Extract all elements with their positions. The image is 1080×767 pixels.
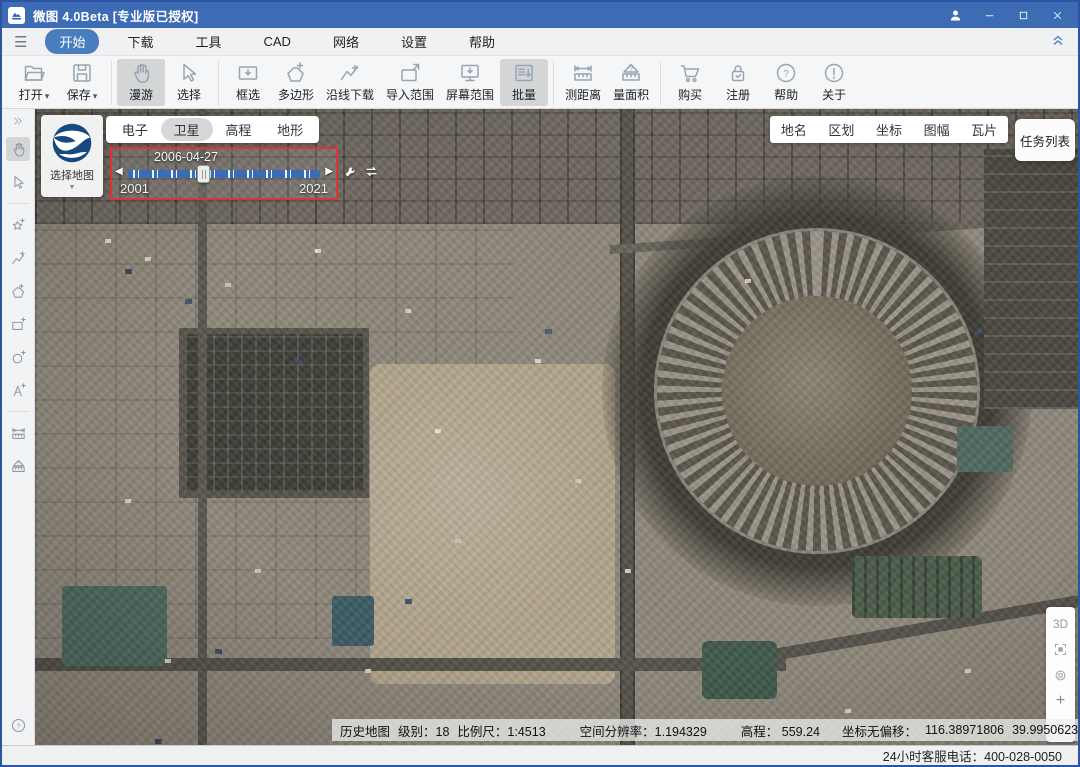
hand-pan-icon — [129, 61, 153, 85]
draw-polyline-button[interactable] — [6, 246, 30, 270]
status-resolution: 空间分辨率：1.194329 — [580, 721, 707, 740]
zoom-in-button[interactable]: + — [1056, 694, 1065, 708]
window-title: 微图 4.0Beta [专业版已授权] — [33, 6, 198, 25]
measure-distance-button[interactable]: 测距离 — [559, 59, 607, 106]
maximize-button[interactable] — [1008, 3, 1038, 27]
layer-tab-elevation[interactable]: 高程 — [213, 118, 265, 141]
minimize-button[interactable] — [974, 3, 1004, 27]
sidebar-help-icon[interactable] — [6, 713, 30, 737]
about-button[interactable]: 关于 — [810, 59, 858, 106]
monitor-download-icon — [458, 61, 482, 85]
ruler-icon — [571, 61, 595, 85]
import-range-button[interactable]: 导入范围 — [380, 59, 440, 106]
save-button[interactable]: 保存▾ — [58, 59, 106, 106]
user-account-icon[interactable] — [940, 3, 970, 27]
save-icon — [70, 61, 94, 85]
layer-tab-terrain[interactable]: 地形 — [264, 118, 316, 141]
draw-rectangle-button[interactable] — [6, 312, 30, 336]
status-longitude: 116.38971806 — [925, 723, 1004, 737]
earth-logo-icon — [50, 121, 94, 165]
timeline-slider-thumb[interactable] — [197, 165, 210, 183]
app-window: 微图 4.0Beta [专业版已授权] ☰ 开始 下载 工具 CAD 网络 设置… — [0, 0, 1080, 767]
layer-tab-electronic[interactable]: 电子 — [109, 118, 161, 141]
title-bar: 微图 4.0Beta [专业版已授权] — [2, 2, 1078, 28]
layer-tab-bar: 电子 卫星 高程 地形 — [106, 116, 319, 143]
toolbar-separator — [218, 61, 219, 105]
mode-3d-button[interactable]: 3D — [1053, 617, 1068, 631]
sidebar-measure-area-button[interactable] — [6, 454, 30, 478]
polygon-plus-icon — [284, 61, 308, 85]
fullscreen-icon[interactable] — [1053, 642, 1068, 657]
timeline-end-year: 2021 — [299, 181, 328, 196]
status-scale: 比例尺：1:4513 — [457, 721, 545, 740]
toolbar-separator — [111, 61, 112, 105]
wrench-icon[interactable] — [343, 164, 358, 179]
footer-bar: 24小时客服电话：400-028-0050 — [2, 745, 1078, 765]
ribbon-toolbar: 打开▾ 保存▾ 漫游 选择 框选 多边形 沿线下载 导入范 — [2, 56, 1078, 109]
status-latitude: 39.9950623 — [1012, 723, 1078, 737]
menu-tools[interactable]: 工具 — [181, 29, 235, 54]
service-phone: 24小时客服电话：400-028-0050 — [883, 746, 1062, 765]
import-box-icon — [398, 61, 422, 85]
tab-districts[interactable]: 区划 — [818, 120, 866, 139]
status-history-map: 历史地图 — [340, 721, 390, 740]
swap-arrows-icon[interactable] — [364, 164, 379, 179]
draw-circle-button[interactable] — [6, 345, 30, 369]
satellite-vignette — [35, 109, 1078, 745]
map-viewport[interactable]: 选择地图 ▼ 电子 卫星 高程 地形 2006-04-27 ◀ ▶ 2001 2… — [35, 109, 1078, 745]
lock-check-icon — [726, 61, 750, 85]
caret-down-icon: ▼ — [69, 185, 76, 191]
locate-icon[interactable] — [1053, 668, 1068, 683]
expand-panel-icon[interactable] — [9, 114, 27, 128]
tab-place-names[interactable]: 地名 — [770, 120, 818, 139]
batch-button[interactable]: 批量 — [500, 59, 548, 106]
tab-tiles[interactable]: 瓦片 — [960, 120, 1008, 139]
collapse-ribbon-icon[interactable] — [1050, 31, 1066, 52]
menu-settings[interactable]: 设置 — [387, 29, 441, 54]
select-button[interactable]: 选择 — [165, 59, 213, 106]
question-circle-icon — [774, 61, 798, 85]
menu-cad[interactable]: CAD — [250, 31, 305, 52]
app-logo-icon — [8, 7, 25, 24]
menu-start[interactable]: 开始 — [45, 29, 99, 54]
close-button[interactable] — [1042, 3, 1072, 27]
dropdown-arrow-icon: ▾ — [45, 91, 50, 101]
status-zoom-level: 级别：18 — [398, 721, 449, 740]
sidebar-separator — [7, 411, 29, 412]
toolbar-separator — [660, 61, 661, 105]
tab-map-sheets[interactable]: 图幅 — [913, 120, 961, 139]
skip-forward-icon[interactable]: ▶ — [325, 166, 333, 177]
buy-button[interactable]: 购买 — [666, 59, 714, 106]
menu-download[interactable]: 下载 — [113, 29, 167, 54]
map-picker-label: 选择地图 — [50, 167, 94, 183]
left-tool-sidebar — [2, 109, 35, 745]
dropdown-arrow-icon: ▾ — [93, 91, 98, 101]
history-timeline-panel: 2006-04-27 ◀ ▶ 2001 2021 — [110, 147, 338, 200]
tab-coordinates[interactable]: 坐标 — [865, 120, 913, 139]
hamburger-menu-icon[interactable]: ☰ — [14, 33, 27, 51]
along-line-download-button[interactable]: 沿线下载 — [320, 59, 380, 106]
menu-bar: ☰ 开始 下载 工具 CAD 网络 设置 帮助 — [2, 28, 1078, 56]
open-button[interactable]: 打开▾ — [10, 59, 58, 106]
timeline-slider-track[interactable] — [128, 170, 320, 178]
exclamation-circle-icon — [822, 61, 846, 85]
sidebar-roam-button[interactable] — [6, 137, 30, 161]
menu-network[interactable]: 网络 — [319, 29, 373, 54]
layer-tab-satellite[interactable]: 卫星 — [161, 118, 213, 141]
sidebar-measure-distance-button[interactable] — [6, 421, 30, 445]
map-source-picker[interactable]: 选择地图 ▼ — [41, 115, 103, 197]
polygon-button[interactable]: 多边形 — [272, 59, 320, 106]
status-offset-label: 坐标无偏移： — [842, 721, 917, 740]
measure-area-button[interactable]: 量面积 — [607, 59, 655, 106]
draw-polygon-button[interactable] — [6, 279, 30, 303]
toolbar-separator — [553, 61, 554, 105]
box-download-icon — [236, 61, 260, 85]
sidebar-select-button[interactable] — [6, 170, 30, 194]
timeline-start-year: 2001 — [120, 181, 149, 196]
cursor-icon — [177, 61, 201, 85]
map-status-bar: 历史地图 级别：18 比例尺：1:4513 空间分辨率：1.194329 高程：… — [332, 719, 1078, 741]
roam-button[interactable]: 漫游 — [117, 59, 165, 106]
add-text-button[interactable] — [6, 378, 30, 402]
register-button[interactable]: 注册 — [714, 59, 762, 106]
timeline-current-date: 2006-04-27 — [154, 150, 218, 164]
polyline-plus-icon — [338, 61, 362, 85]
status-elevation: 高程： 559.24 — [741, 721, 820, 740]
skip-back-icon[interactable]: ◀ — [115, 166, 123, 177]
screen-range-button[interactable]: 屏幕范围 — [440, 59, 500, 106]
folder-icon — [22, 61, 46, 85]
list-download-icon — [512, 61, 536, 85]
draw-freeform-button[interactable] — [6, 213, 30, 237]
box-select-button[interactable]: 框选 — [224, 59, 272, 106]
help-button[interactable]: 帮助 — [762, 59, 810, 106]
info-tab-bar: 地名 区划 坐标 图幅 瓦片 — [770, 116, 1008, 143]
timeline-tools — [343, 164, 379, 179]
menu-help[interactable]: 帮助 — [455, 29, 509, 54]
sidebar-separator — [7, 203, 29, 204]
shopping-cart-icon — [678, 61, 702, 85]
task-list-button[interactable]: 任务列表 — [1015, 119, 1075, 161]
area-ruler-icon — [619, 61, 643, 85]
